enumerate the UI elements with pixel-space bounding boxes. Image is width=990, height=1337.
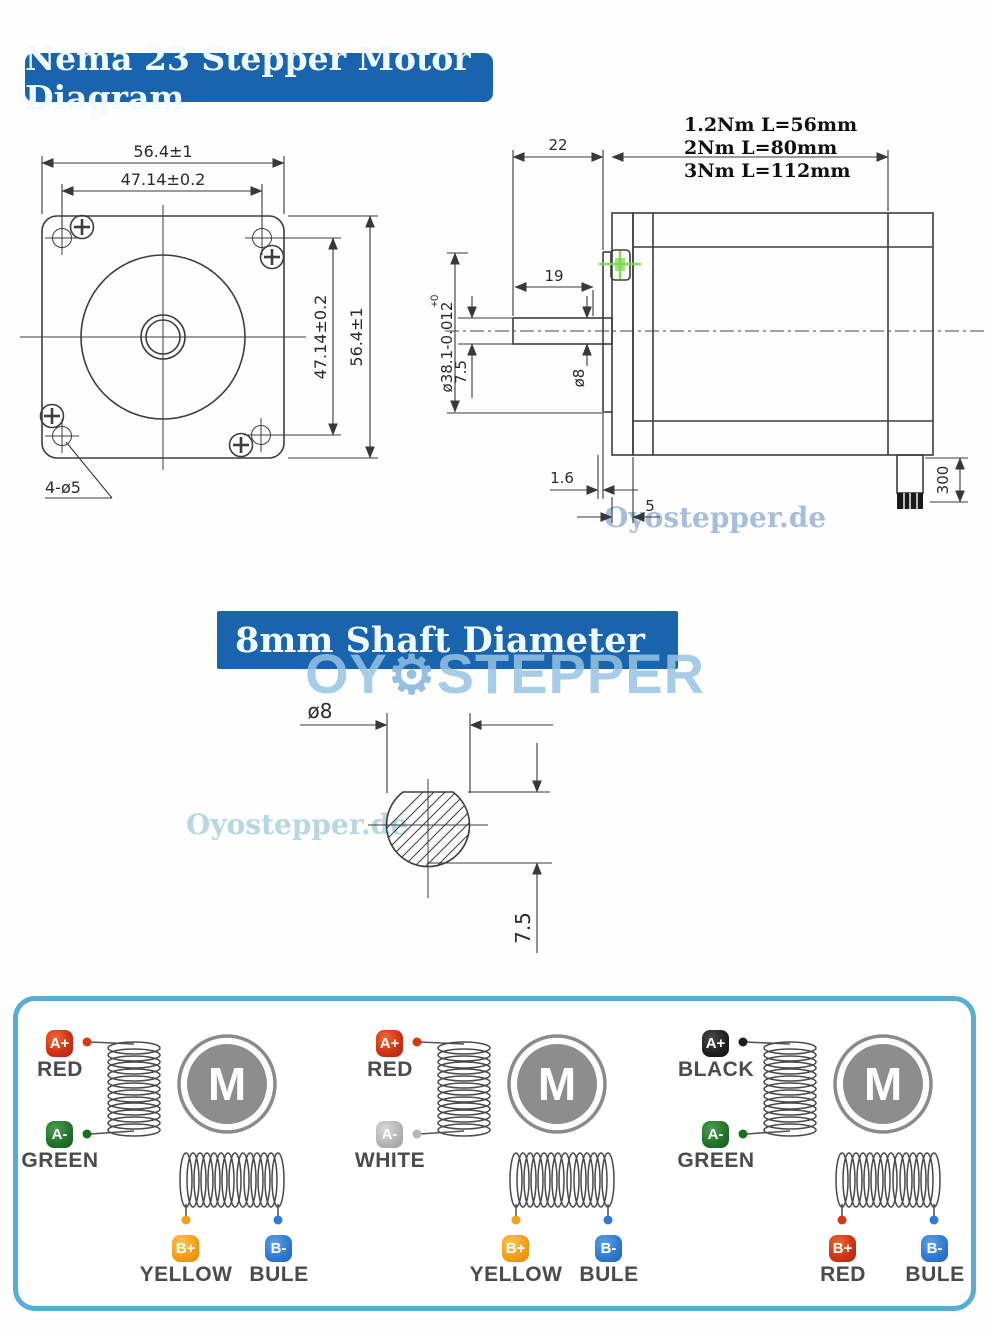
motor-cable <box>897 455 923 509</box>
terminal-badge-b-plus: B+ <box>172 1235 199 1262</box>
wire-color-label: RED <box>320 1058 460 1082</box>
dim-shaft-usable: 19 <box>544 267 563 285</box>
wire-color-label: BULE <box>865 1263 990 1287</box>
terminal-badge-a-minus: A- <box>46 1121 73 1148</box>
dim-height-outer: 56.4±1 <box>347 307 366 366</box>
terminal-badge-a-plus: A+ <box>702 1030 729 1057</box>
wire-color-label: GREEN <box>646 1149 786 1173</box>
wire-color-label: RED <box>0 1058 130 1082</box>
torque-option-2: 2Nm L=80mm <box>684 137 837 159</box>
svg-text:M: M <box>864 1058 902 1110</box>
shaft-section-dimensions: ø8 7.5 <box>300 699 553 953</box>
front-view-dimensions: 56.4±1 47.14±0.2 47.14±0.2 56.4±1 4-ø5 <box>42 142 378 498</box>
wire-color-label: BLACK <box>646 1058 786 1082</box>
dim-width-outer: 56.4±1 <box>133 142 192 161</box>
front-view-drawing: 56.4±1 47.14±0.2 47.14±0.2 56.4±1 4-ø5 <box>20 142 378 498</box>
wire-color-label: BULE <box>209 1263 349 1287</box>
dim-flange-gap: 1.6 <box>550 469 574 487</box>
dim-pilot-dia-tol: +0 <box>429 295 441 308</box>
terminal-badge-a-minus: A- <box>702 1121 729 1148</box>
wire-color-label: BULE <box>539 1263 679 1287</box>
dim-mounting-holes: 4-ø5 <box>45 478 81 497</box>
terminal-badge-a-plus: A+ <box>376 1030 403 1057</box>
svg-text:M: M <box>208 1058 246 1110</box>
wiring-graphics: M M M <box>83 1036 941 1225</box>
shaft-section-drawing: ø8 7.5 <box>300 699 571 953</box>
dim-height-holes: 47.14±0.2 <box>311 295 330 380</box>
torque-option-1: 1.2Nm L=56mm <box>684 114 857 136</box>
terminal-badge-b-minus: B- <box>921 1235 948 1262</box>
terminal-badge-b-minus: B- <box>265 1235 292 1262</box>
dim-cable-length: 300 <box>934 466 952 495</box>
dim-section-flat-height: 7.5 <box>511 912 535 944</box>
dim-shaft-protrusion: 22 <box>548 136 567 154</box>
dim-shaft-dia: ø8 <box>570 369 588 388</box>
dim-section-dia: ø8 <box>308 699 333 723</box>
flange-screw <box>599 250 641 280</box>
terminal-badge-a-minus: A- <box>376 1121 403 1148</box>
datasheet-page: Nema 23 Stepper Motor Diagram 8mm Shaft … <box>0 0 990 1337</box>
torque-option-3: 3Nm L=112mm <box>684 160 850 182</box>
dim-pilot-dia: ø38.1-0.012 <box>438 302 456 393</box>
terminal-badge-b-minus: B- <box>595 1235 622 1262</box>
dim-boss-depth: 5 <box>645 497 655 515</box>
side-view-drawing: 22 1.2Nm L=56mm 2Nm L=80mm 3Nm L=112mm 1… <box>429 114 985 523</box>
dim-width-holes: 47.14±0.2 <box>121 170 206 189</box>
terminal-badge-a-plus: A+ <box>46 1030 73 1057</box>
terminal-badge-b-plus: B+ <box>502 1235 529 1262</box>
terminal-badge-b-plus: B+ <box>829 1235 856 1262</box>
motor-symbol-1: M <box>179 1036 275 1132</box>
wire-color-label: GREEN <box>0 1149 130 1173</box>
motor-symbol-3: M <box>835 1036 931 1132</box>
drawing-canvas: 56.4±1 47.14±0.2 47.14±0.2 56.4±1 4-ø5 <box>0 0 990 1337</box>
side-view-dimensions: 22 1.2Nm L=56mm 2Nm L=80mm 3Nm L=112mm 1… <box>429 114 968 523</box>
motor-symbol-2: M <box>509 1036 605 1132</box>
svg-text:M: M <box>538 1058 576 1110</box>
wire-color-label: WHITE <box>320 1149 460 1173</box>
